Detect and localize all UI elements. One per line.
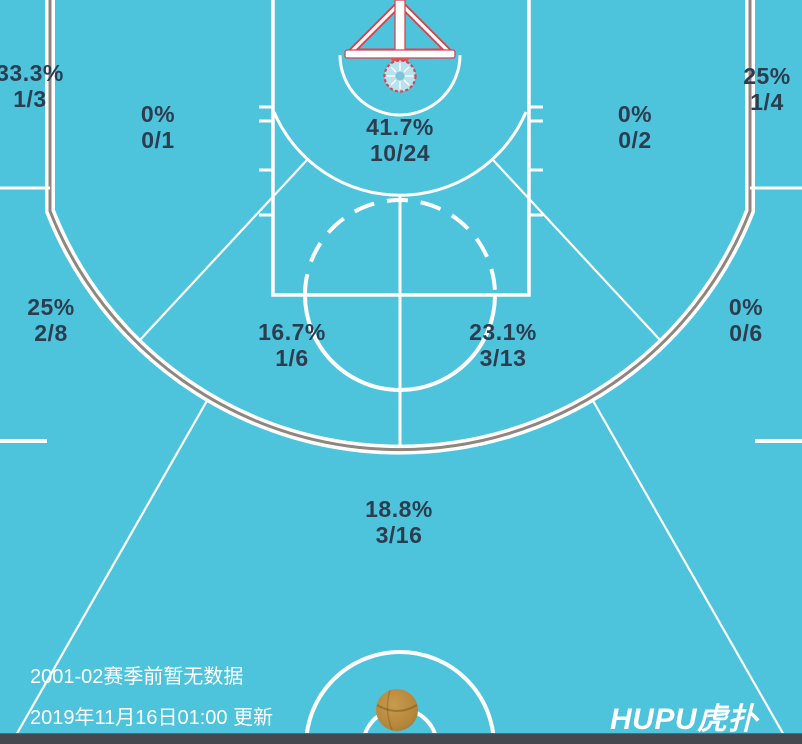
zone-percent: 23.1%	[469, 319, 537, 345]
zone-fraction: 2/8	[27, 320, 75, 346]
zone-fraction: 0/2	[618, 127, 652, 153]
zone-fraction: 10/24	[366, 140, 434, 166]
zone-fraction: 0/6	[729, 320, 763, 346]
zone-label-right-corner-3: 25% 1/4	[743, 63, 791, 115]
zone-percent: 0%	[141, 101, 175, 127]
court-graphic	[0, 0, 802, 744]
update-time: 2019年11月16日01:00 更新	[30, 701, 273, 730]
zone-percent: 18.8%	[365, 496, 433, 522]
zone-fraction: 1/3	[0, 86, 64, 112]
zone-fraction: 3/16	[365, 522, 433, 548]
zone-label-top-of-arc-3: 18.8% 3/16	[365, 496, 433, 548]
zone-fraction: 3/13	[469, 345, 537, 371]
zone-percent: 33.3%	[0, 60, 64, 86]
zone-divider-ray-left	[139, 160, 307, 341]
zone-label-left-corner-3: 33.3% 1/3	[0, 60, 64, 112]
zone-fraction: 1/4	[743, 89, 791, 115]
rim-icon	[385, 61, 416, 92]
zone-label-right-baseline-mid: 0% 0/2	[618, 101, 652, 153]
footer-bar	[0, 733, 802, 744]
shot-chart: 33.3% 1/3 0% 0/1 41.7% 10/24 0% 0/2 25% …	[0, 0, 802, 744]
zone-percent: 0%	[618, 101, 652, 127]
hoop-pole	[395, 0, 405, 55]
zone-percent: 25%	[743, 63, 791, 89]
zone-label-left-center-mid: 16.7% 1/6	[258, 319, 326, 371]
zone-divider-ray-bottom-left	[11, 399, 208, 744]
zone-label-left-wing-3: 25% 2/8	[27, 294, 75, 346]
hoop-icon	[345, 0, 455, 92]
zone-percent: 16.7%	[258, 319, 326, 345]
zone-fraction: 1/6	[258, 345, 326, 371]
zone-divider-ray-bottom-right	[592, 399, 789, 744]
zone-label-right-wing-3: 0% 0/6	[729, 294, 763, 346]
zone-divider-ray-right	[493, 160, 661, 341]
zone-fraction: 0/1	[141, 127, 175, 153]
zone-label-left-baseline-mid: 0% 0/1	[141, 101, 175, 153]
hupu-logo: HUPU虎扑	[610, 694, 758, 738]
zone-label-restricted-area: 41.7% 10/24	[366, 114, 434, 166]
basketball-icon	[376, 689, 418, 731]
no-data-note: 2001-02赛季前暂无数据	[30, 660, 243, 689]
zone-label-right-center-mid: 23.1% 3/13	[469, 319, 537, 371]
zone-percent: 41.7%	[366, 114, 434, 140]
zone-percent: 25%	[27, 294, 75, 320]
hoop-base-bar	[345, 50, 455, 58]
zone-percent: 0%	[729, 294, 763, 320]
